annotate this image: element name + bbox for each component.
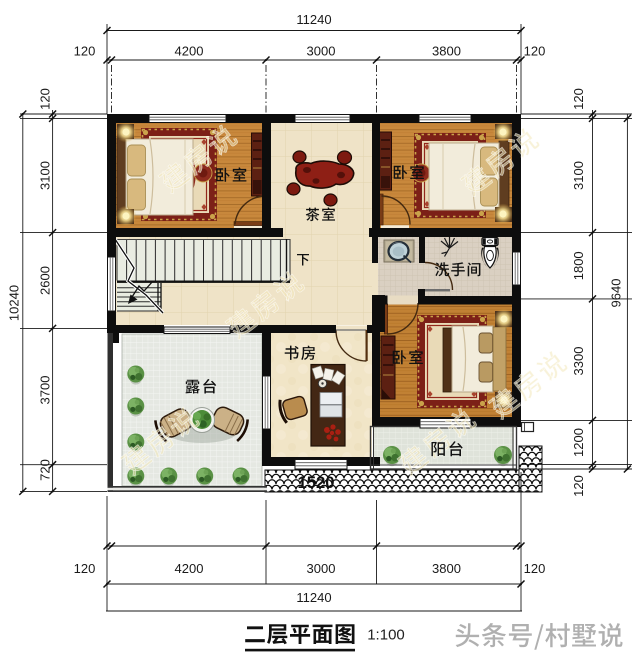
svg-text:120: 120 [38,88,53,110]
svg-text:3100: 3100 [38,161,53,190]
svg-text:120: 120 [74,44,96,59]
svg-text:11240: 11240 [296,590,331,605]
svg-text:720: 720 [38,459,53,481]
svg-text:120: 120 [571,475,586,497]
svg-text:3000: 3000 [307,44,336,59]
svg-text:3000: 3000 [307,561,336,576]
svg-text:1520: 1520 [298,473,335,492]
svg-text:120: 120 [524,44,546,59]
svg-text:4200: 4200 [175,44,204,59]
svg-text:9640: 9640 [609,279,624,308]
svg-text:1800: 1800 [571,251,586,280]
svg-text:3100: 3100 [571,161,586,190]
svg-text:120: 120 [571,88,586,110]
svg-text:1:100: 1:100 [367,627,405,644]
svg-text:10240: 10240 [7,285,22,321]
svg-text:3700: 3700 [38,376,53,405]
svg-text:120: 120 [74,561,96,576]
svg-text:3800: 3800 [432,561,461,576]
svg-text:2600: 2600 [38,266,53,295]
svg-text:3300: 3300 [571,347,586,376]
svg-text:4200: 4200 [175,561,204,576]
svg-text:1200: 1200 [571,428,586,457]
svg-text:11240: 11240 [296,12,331,27]
svg-text:120: 120 [524,561,546,576]
svg-text:3800: 3800 [432,44,461,59]
